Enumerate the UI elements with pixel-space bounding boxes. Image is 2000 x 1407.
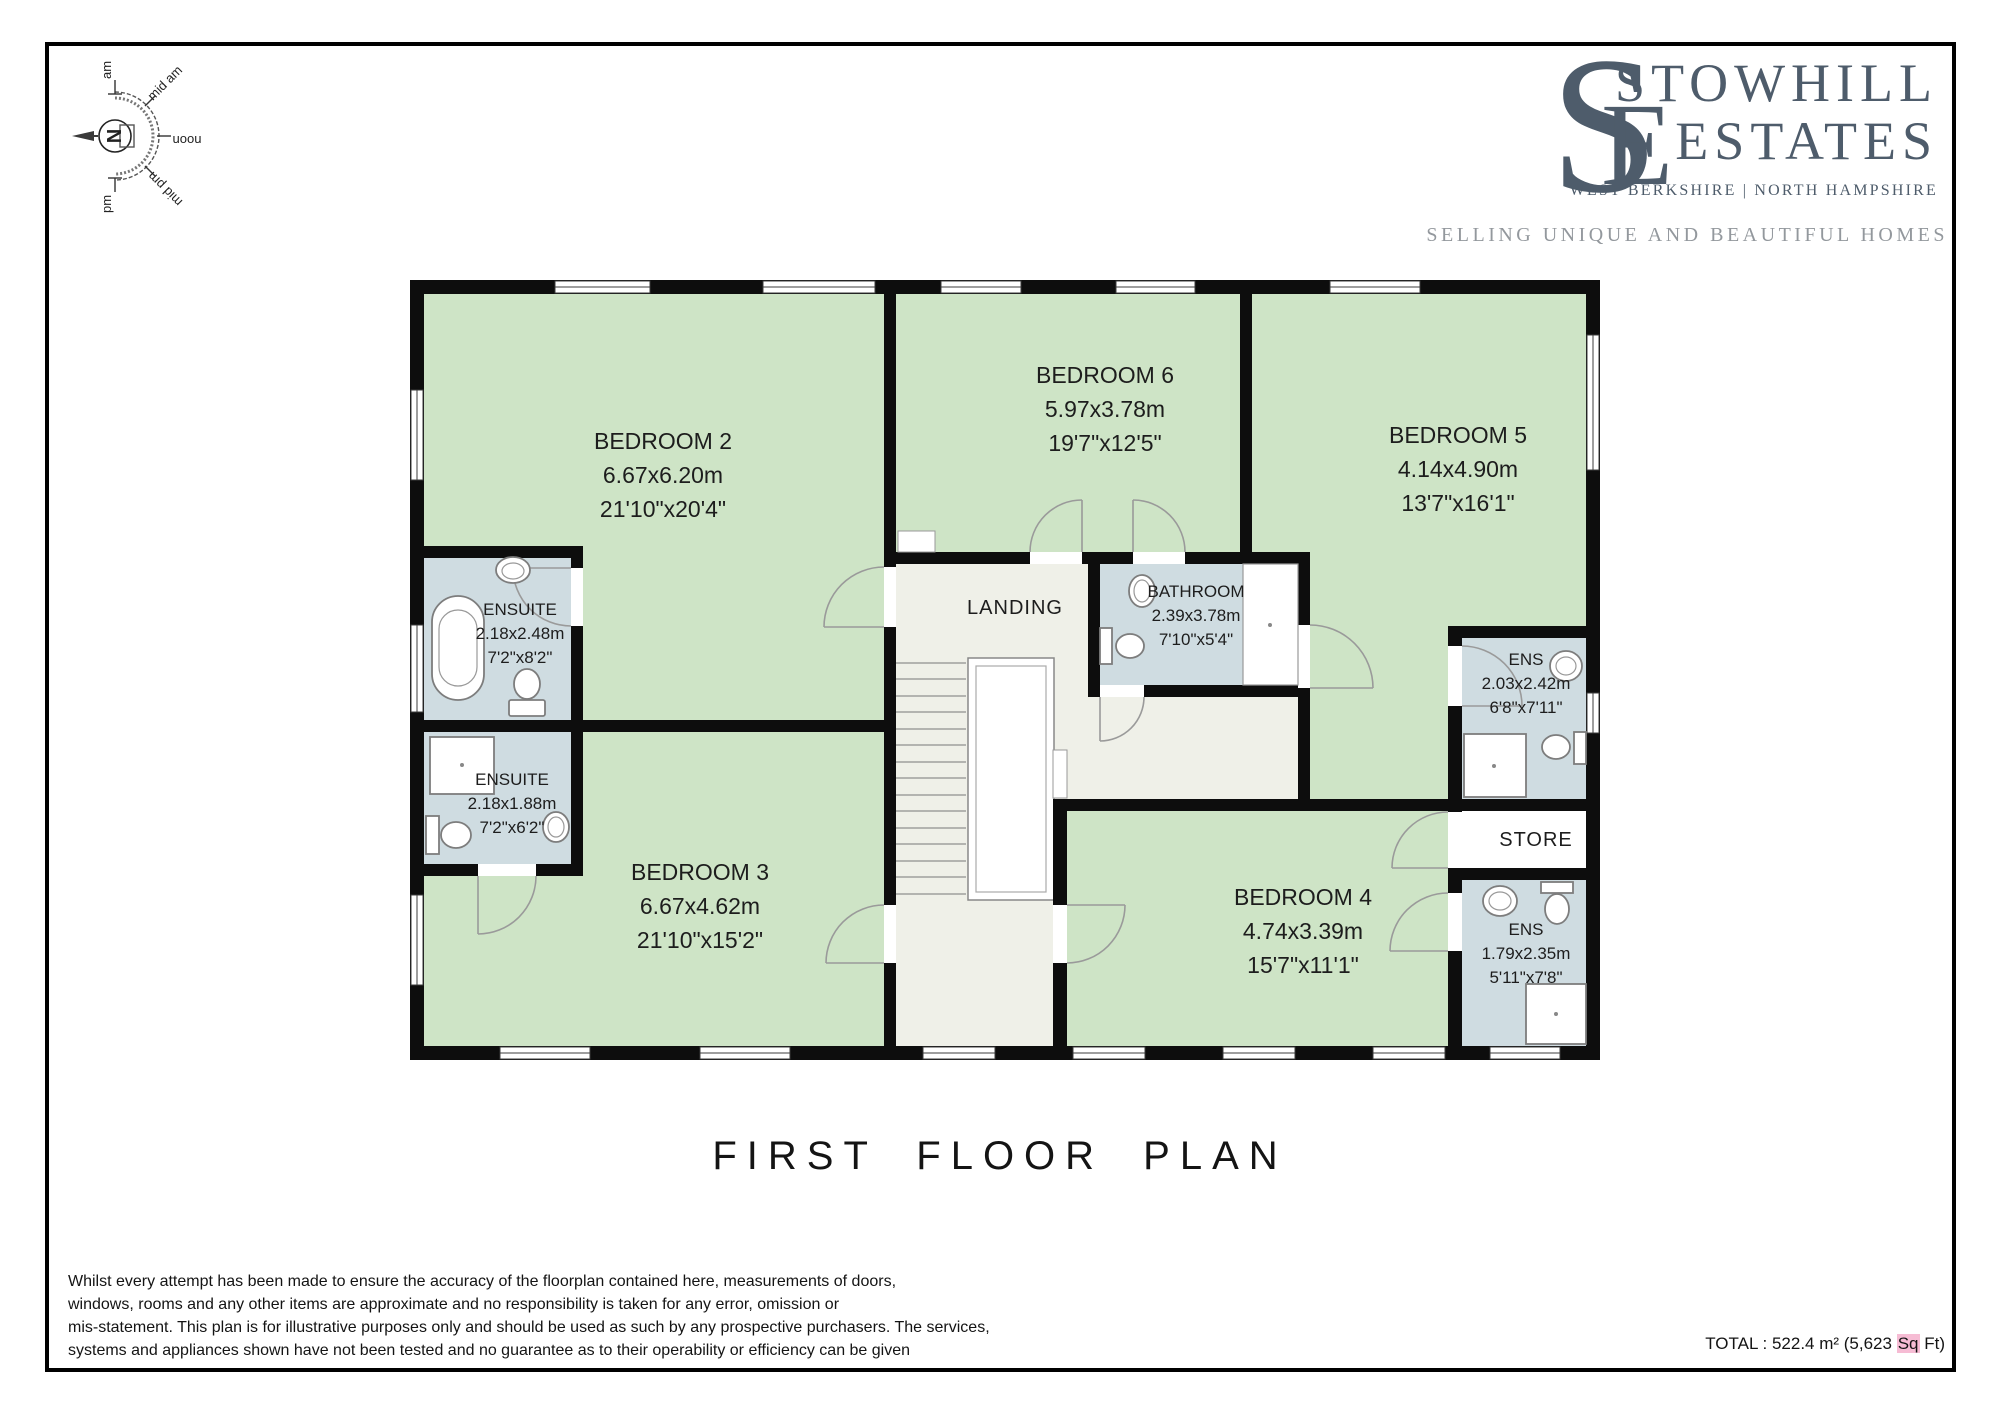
room-dim-metric: 2.39x3.78m [1148, 604, 1245, 628]
sink-icon [1483, 886, 1517, 916]
room-name: ENS [1482, 918, 1571, 942]
compass-label-mid-pm: mid pm [144, 169, 185, 210]
brand-tagline: SELLING UNIQUE AND BEAUTIFUL HOMES [1426, 224, 1948, 247]
room-dim-metric: 2.18x1.88m [468, 792, 557, 816]
room-name: ENS [1482, 648, 1571, 672]
room-dim-imperial: 21'10"x20'4" [594, 492, 732, 526]
stair-well [968, 658, 1054, 900]
room-fill-bedroom5-lower [1310, 564, 1586, 626]
compass-label-am: am [99, 61, 114, 79]
room-dim-imperial: 7'2"x6'2" [468, 816, 557, 840]
room-dim-imperial: 21'10"x15'2" [631, 923, 769, 957]
room-label-ensuite2: ENSUITE 2.18x1.88m 7'2"x6'2" [468, 768, 557, 840]
room-name: ENSUITE [468, 768, 557, 792]
room-dim-imperial: 15'7"x11'1" [1234, 948, 1372, 982]
room-fill-bedroom5-strip [1310, 626, 1448, 799]
room-name: BEDROOM 4 [1234, 880, 1372, 914]
toilet-icon [1541, 882, 1573, 893]
brand-name-line1: STOWHILL [1570, 54, 1938, 112]
room-label-bathroom: BATHROOM 2.39x3.78m 7'10"x5'4" [1148, 580, 1245, 652]
room-label-bedroom6: BEDROOM 6 5.97x3.78m 19'7"x12'5" [1036, 358, 1174, 460]
brand-name-line2: ESTATES [1570, 112, 1938, 170]
toilet-icon [509, 700, 545, 716]
room-dim-metric: 4.74x3.39m [1234, 914, 1372, 948]
floorplan-drawing [410, 280, 1600, 1060]
brand-text-block: STOWHILL ESTATES WEST BERKSHIRE | NORTH … [1570, 54, 1938, 200]
compass-label-pm: pm [99, 195, 114, 213]
room-name: STORE [1499, 828, 1573, 852]
room-label-bedroom4: BEDROOM 4 4.74x3.39m 15'7"x11'1" [1234, 880, 1372, 982]
compass-arrow-icon [72, 131, 94, 141]
room-name: BATHROOM [1148, 580, 1245, 604]
room-name: BEDROOM 6 [1036, 358, 1174, 392]
disclaimer-line: systems and appliances shown have not be… [68, 1339, 990, 1362]
toilet-icon [1100, 628, 1112, 664]
room-dim-imperial: 7'2"x8'2" [476, 646, 565, 670]
room-name: LANDING [967, 596, 1063, 620]
room-dim-imperial: 7'10"x5'4" [1148, 628, 1245, 652]
room-name: BEDROOM 3 [631, 855, 769, 889]
room-name: BEDROOM 2 [594, 424, 732, 458]
room-dim-imperial: 5'11"x7'8" [1482, 966, 1571, 990]
disclaimer-line: Whilst every attempt has been made to en… [68, 1270, 990, 1293]
room-name: ENSUITE [476, 598, 565, 622]
total-area: TOTAL : 522.4 m² (5,623 Sq Ft) [1705, 1334, 1945, 1354]
room-label-ens-bottom: ENS 1.79x2.35m 5'11"x7'8" [1482, 918, 1571, 990]
room-label-ensuite1: ENSUITE 2.18x2.48m 7'2"x8'2" [476, 598, 565, 670]
sun-compass: N am mid am noon mid pm pm [68, 48, 236, 226]
room-dim-metric: 4.14x4.90m [1389, 452, 1527, 486]
room-dim-metric: 6.67x4.62m [631, 889, 769, 923]
total-suffix: Ft) [1920, 1334, 1946, 1353]
compass-label-noon: noon [173, 133, 202, 148]
wall-niche [898, 531, 935, 552]
room-dim-metric: 6.67x6.20m [594, 458, 732, 492]
disclaimer-text: Whilst every attempt has been made to en… [68, 1270, 990, 1362]
wall-niche [1053, 750, 1067, 798]
room-label-bedroom5: BEDROOM 5 4.14x4.90m 13'7"x16'1" [1389, 418, 1527, 520]
room-dim-metric: 1.79x2.35m [1482, 942, 1571, 966]
total-prefix: TOTAL : 522.4 m² (5,623 [1705, 1334, 1897, 1353]
room-dim-metric: 2.18x2.48m [476, 622, 565, 646]
total-highlighted-word: Sq [1897, 1334, 1920, 1353]
room-dim-imperial: 19'7"x12'5" [1036, 426, 1174, 460]
compass-label-mid-am: mid am [144, 62, 185, 103]
room-dim-imperial: 13'7"x16'1" [1389, 486, 1527, 520]
room-label-bedroom3: BEDROOM 3 6.67x4.62m 21'10"x15'2" [631, 855, 769, 957]
room-dim-metric: 5.97x3.78m [1036, 392, 1174, 426]
room-dim-imperial: 6'8"x7'11" [1482, 696, 1571, 720]
room-label-store: STORE [1499, 828, 1573, 852]
brand-region: WEST BERKSHIRE | NORTH HAMPSHIRE [1570, 182, 1938, 200]
disclaimer-line: windows, rooms and any other items are a… [68, 1293, 990, 1316]
room-label-bedroom2: BEDROOM 2 6.67x6.20m 21'10"x20'4" [594, 424, 732, 526]
room-label-ens-right: ENS 2.03x2.42m 6'8"x7'11" [1482, 648, 1571, 720]
room-name: BEDROOM 5 [1389, 418, 1527, 452]
room-dim-metric: 2.03x2.42m [1482, 672, 1571, 696]
compass-north-label: N [104, 129, 126, 143]
room-label-landing: LANDING [967, 596, 1063, 620]
disclaimer-line: mis-statement. This plan is for illustra… [68, 1316, 990, 1339]
plan-title: FIRST FLOOR PLAN [0, 1134, 2000, 1179]
floorplan-page: N am mid am noon mid pm pm S E STOWHILL … [0, 0, 2000, 1407]
toilet-icon [426, 816, 439, 854]
toilet-icon [1574, 732, 1586, 764]
